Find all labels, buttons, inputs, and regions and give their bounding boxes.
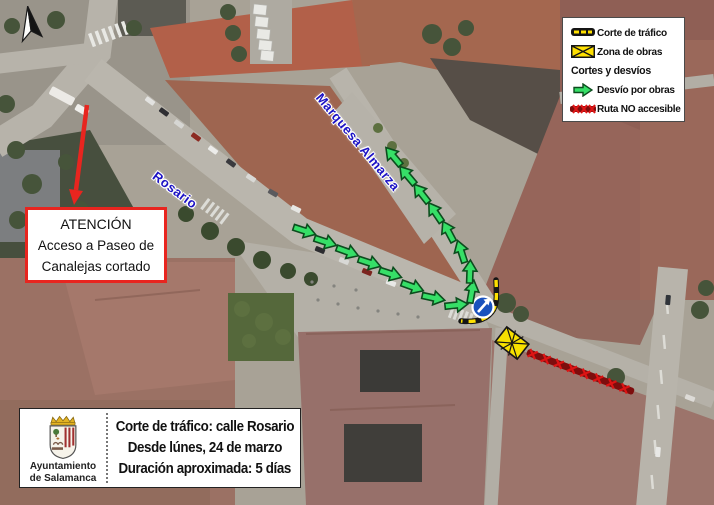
legend-label: Desvío por obras [597,84,675,96]
legend-header-label: Cortes y desvíos [571,65,651,77]
org-name-line: Ayuntamiento [30,461,96,473]
detour-arrow-icon [377,263,405,286]
attention-box: ATENCIÓN Acceso a Paseo de Canalejas cor… [25,207,167,283]
notice-line: Corte de tráfico: calle Rosario [116,417,294,438]
legend: Corte de tráfico Zona de obras Cortes y … [562,17,685,122]
city-council-block: Ayuntamiento de Salamanca [20,409,106,487]
notice-line: Duración aproximada: 5 días [119,459,291,480]
no-access-icon [569,104,597,114]
notice-line: Desde lúnes, 24 de marzo [128,438,282,459]
legend-row-no-access: Ruta NO accesible [569,100,679,117]
attention-title: ATENCIÓN [60,214,131,235]
attention-line: Canalejas cortado [42,256,151,277]
notice-text-block: Corte de tráfico: calle Rosario Desde lú… [108,409,302,487]
attention-line: Acceso a Paseo de [38,235,154,256]
work-zone-icon [569,45,597,58]
legend-row-header: Cortes y desvíos [569,62,679,79]
org-name-line: de Salamanca [30,473,97,485]
legend-label: Zona de obras [597,46,662,58]
traffic-cut-map: Rosario Marquesa Almarza Corte de tráfic… [0,0,714,505]
legend-label: Ruta NO accesible [597,103,681,115]
traffic-cut-icon [569,28,597,37]
legend-row-traffic-cut: Corte de tráfico [569,24,679,41]
info-box: Ayuntamiento de Salamanca Corte de tráfi… [19,408,301,488]
legend-row-detour: Desvío por obras [569,81,679,98]
legend-label: Corte de tráfico [597,27,667,39]
salamanca-coat-of-arms [45,413,81,461]
detour-arrow-icon [569,83,597,97]
legend-row-work-zone: Zona de obras [569,43,679,60]
